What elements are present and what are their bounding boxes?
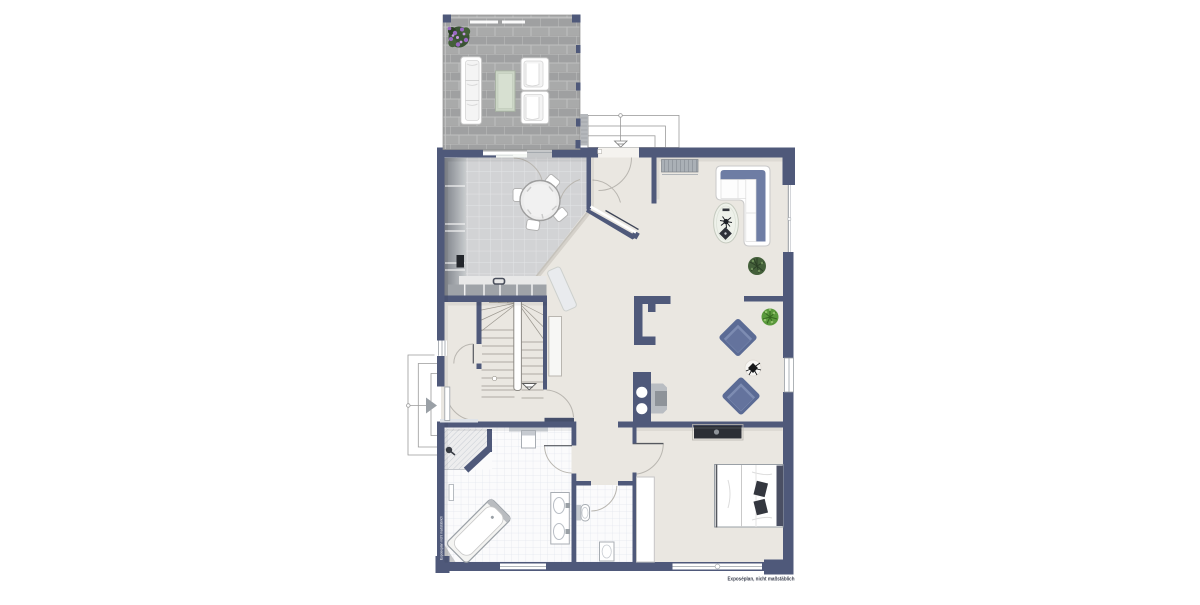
svg-text:Exposeplan nicht maßstäblich: Exposeplan nicht maßstäblich	[440, 516, 444, 560]
svg-text:Exposéplan, nicht maßstäblich: Exposéplan, nicht maßstäblich	[728, 576, 795, 582]
